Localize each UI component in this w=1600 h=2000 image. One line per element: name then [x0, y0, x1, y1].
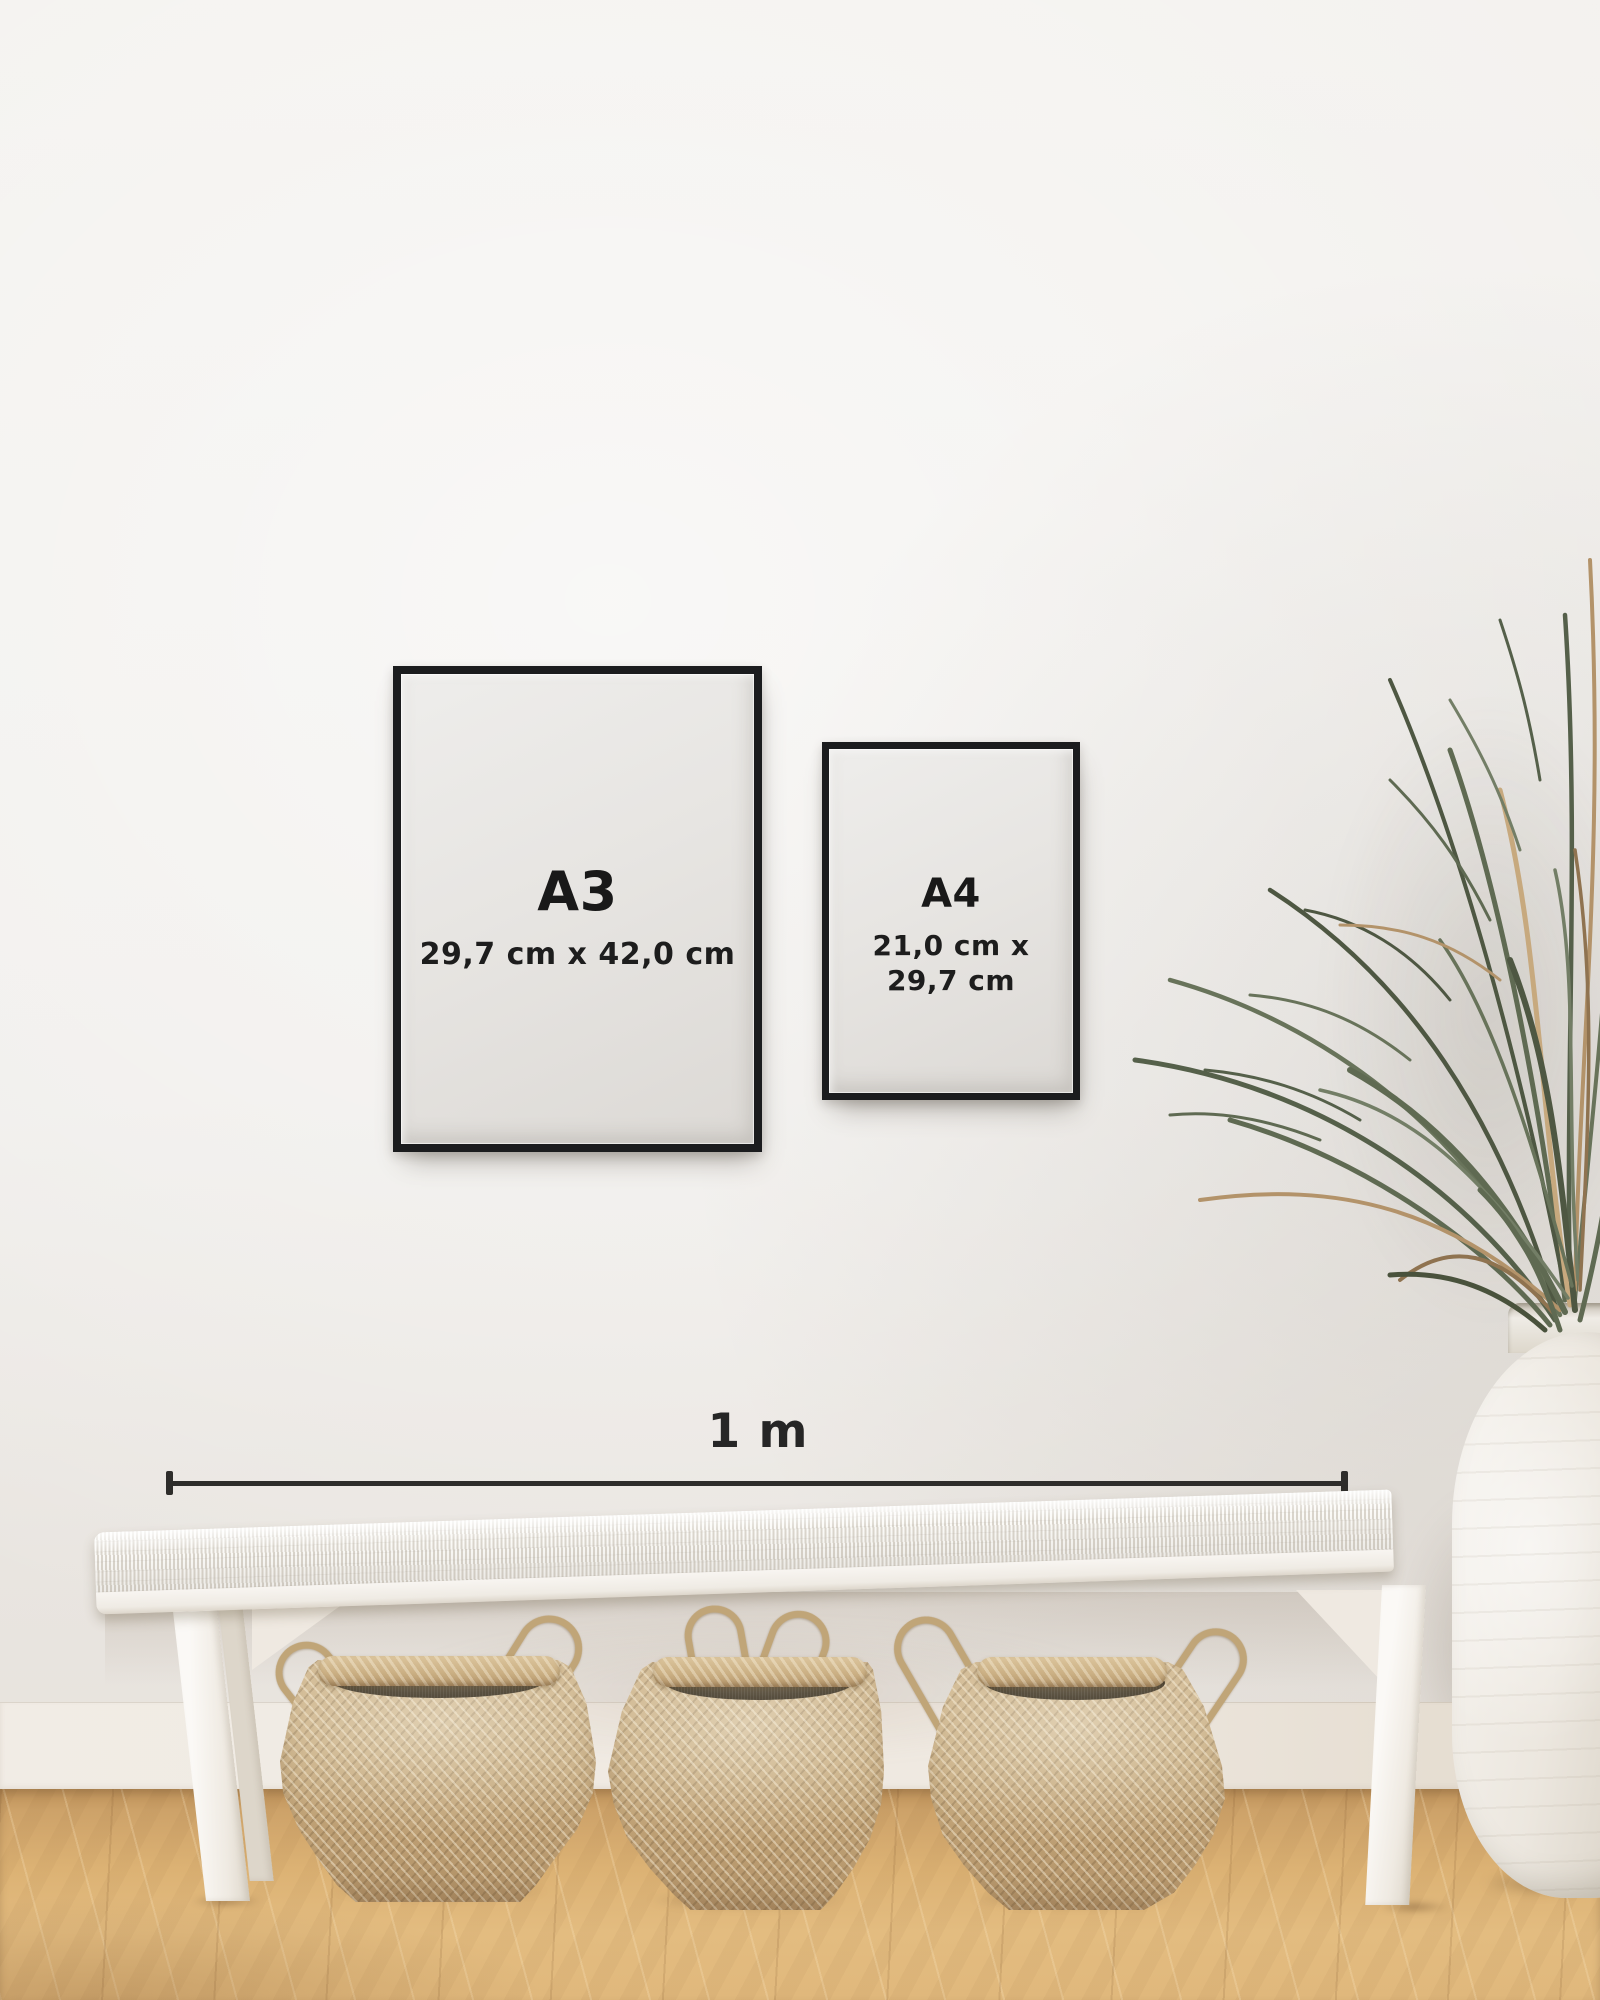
frame-a4-size-label: A4 [921, 872, 981, 916]
frame-a4-dimensions-line2: 29,7 cm [873, 963, 1030, 998]
seagrass-basket-2 [608, 1605, 884, 1910]
frame-a4-dimensions: 21,0 cm x 29,7 cm [873, 928, 1030, 998]
seagrass-basket-1 [280, 1610, 596, 1902]
scale-label: 1 m [558, 1404, 958, 1459]
seagrass-basket-3 [925, 1608, 1225, 1910]
frame-a3-size-label: A3 [537, 862, 617, 921]
frame-a3-dimensions: 29,7 cm x 42,0 cm [420, 937, 736, 972]
frame-a3: A3 29,7 cm x 42,0 cm [393, 666, 762, 1152]
palm-plant [1020, 420, 1600, 1420]
frame-a3-paper: A3 29,7 cm x 42,0 cm [401, 674, 754, 1144]
scale-end-cap-left [166, 1471, 173, 1495]
frame-a4-text: A4 21,0 cm x 29,7 cm [873, 872, 1030, 998]
basket-3-rim [977, 1657, 1167, 1687]
scale-line [170, 1481, 1344, 1486]
frame-a4-dimensions-line1: 21,0 cm x [873, 928, 1030, 963]
basket-2-rim [653, 1657, 867, 1687]
basket-1-rim [318, 1656, 560, 1686]
room-mockup: A3 29,7 cm x 42,0 cm A4 21,0 cm x 29,7 c… [0, 0, 1600, 2000]
frame-a3-text: A3 29,7 cm x 42,0 cm [420, 862, 736, 972]
